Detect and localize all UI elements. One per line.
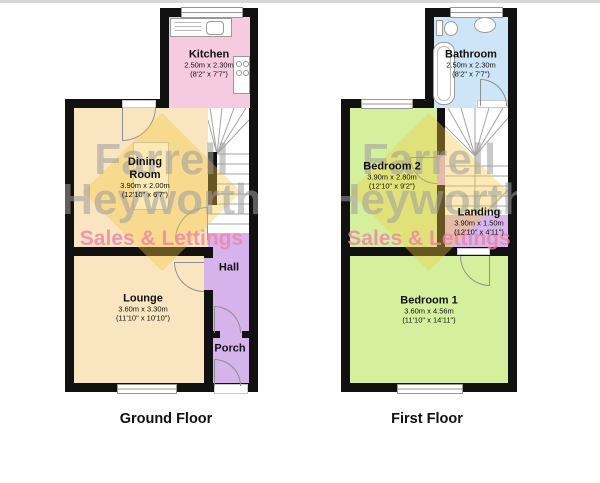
- bathroom-window: [450, 7, 503, 18]
- kitchen-imperial: (8'2" x 7'7"): [184, 70, 234, 79]
- bathroom-imperial: (8'2" x 7'7"): [445, 70, 497, 79]
- toilet-icon: [444, 21, 458, 36]
- sink-bowl-icon: [206, 21, 224, 35]
- lounge-imperial: (11'10" x 10'10"): [116, 314, 170, 323]
- lounge-label: Lounge 3.60m x 3.30m (11'10" x 10'10"): [116, 293, 170, 324]
- bedroom-1-imperial: (11'10" x 14'11"): [400, 316, 457, 325]
- first-staircase: [445, 108, 508, 215]
- bedroom2-door-opening: [437, 155, 445, 185]
- landing-label: Landing 3.90m x 1.50m (12'10" x 4'11"): [454, 207, 504, 238]
- first-floor-title: First Floor: [391, 411, 463, 427]
- lounge-window: [117, 384, 177, 394]
- dining-room-imperial: (12'10" x 6'7"): [120, 191, 170, 200]
- sink-drainer-icon: [175, 22, 201, 34]
- floorplan-canvas: Farrell Heyworth Sales & Lettings Kitche…: [0, 0, 600, 483]
- dining-stairs-wall: [208, 152, 217, 205]
- kitchen-window: [181, 7, 243, 18]
- porch-label: Porch: [214, 343, 245, 356]
- hall-porch-wall-nub-right: [242, 331, 249, 338]
- first-stairs-treads-icon: [445, 108, 508, 215]
- kitchen-label: Kitchen 2.50m x 2.30m (8'2" x 7'7"): [184, 49, 234, 80]
- landing-imperial: (12'10" x 4'11"): [454, 228, 504, 237]
- dining-room-label: Dining Room 3.90m x 2.00m (12'10" x 6'7"…: [120, 156, 170, 200]
- bedroom-2-window: [361, 99, 413, 109]
- dining-lounge-wall: [65, 247, 213, 256]
- bedroom-2-imperial: (12'10" x 9'2"): [363, 182, 420, 191]
- porch-name: Porch: [214, 343, 245, 356]
- lounge-door-opening: [204, 258, 213, 290]
- stove-icon: [233, 56, 250, 94]
- hall-name: Hall: [219, 262, 239, 275]
- bathroom-label: Bathroom 2.50m x 2.30m (8'2" x 7'7"): [445, 49, 497, 80]
- bedroom-1-door-threshold: [457, 248, 490, 255]
- toilet-cistern-icon: [436, 20, 443, 36]
- kitchen-sink-icon: [170, 18, 232, 37]
- hall-label: Hall: [219, 262, 239, 275]
- basin-icon: [474, 17, 496, 33]
- bedroom-1-window: [397, 384, 463, 394]
- bedroom-1-label: Bedroom 1 3.60m x 4.56m (11'10" x 14'11"…: [400, 295, 457, 326]
- dining-room-name: Dining Room: [122, 156, 168, 182]
- top-border-strip: [0, 0, 600, 3]
- bedroom-2-label: Bedroom 2 3.90m x 2.80m (12'10" x 9'2"): [363, 161, 420, 192]
- ground-floor-title: Ground Floor: [120, 411, 213, 427]
